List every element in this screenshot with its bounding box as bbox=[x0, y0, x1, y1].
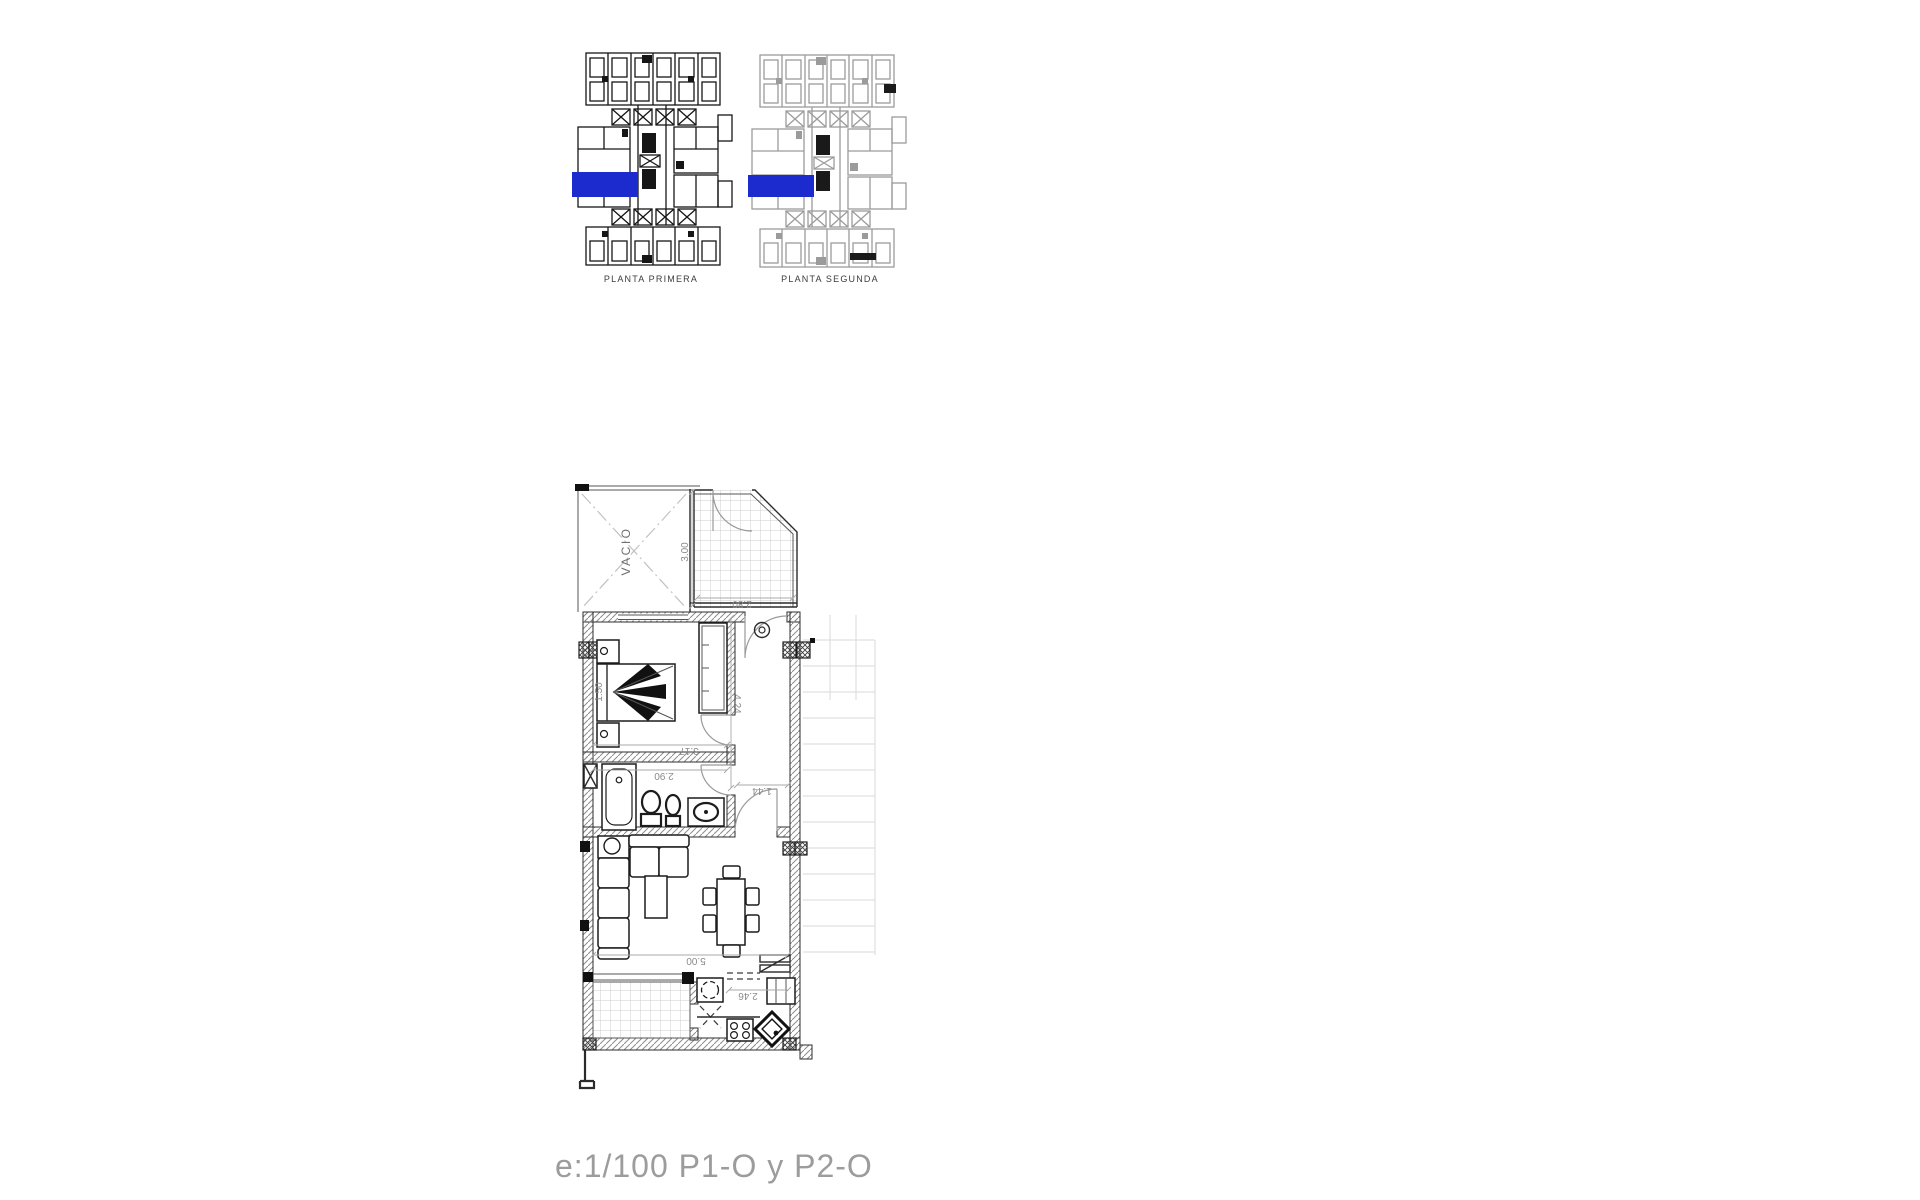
kitchen bbox=[697, 973, 795, 1046]
key-plan-planta-primera bbox=[572, 53, 732, 265]
key-plan-planta-segunda bbox=[748, 55, 906, 267]
wall-vent bbox=[580, 841, 590, 852]
side-table bbox=[598, 836, 629, 858]
dining-chair bbox=[746, 888, 759, 905]
living-room bbox=[580, 835, 790, 972]
key-plan-primera-drawing bbox=[578, 53, 732, 265]
bathroom-door-arc bbox=[701, 765, 731, 795]
wall-stub bbox=[575, 484, 589, 491]
dining-chair bbox=[746, 915, 759, 932]
sofa-seat bbox=[598, 858, 629, 888]
sofa-back bbox=[629, 835, 689, 847]
dim-bed-width: 1.50 bbox=[594, 682, 605, 702]
bedroom-door-arc bbox=[701, 715, 731, 745]
dim-hall-width: 1.44 bbox=[752, 785, 772, 796]
dim-terrace-width: 2.80 bbox=[732, 598, 752, 609]
dim-bathroom-width: 2.90 bbox=[654, 770, 674, 781]
dining-chair bbox=[703, 915, 716, 932]
bidet-bowl bbox=[666, 795, 680, 815]
key-plan-segunda-label: PLANTA SEGUNDA bbox=[781, 274, 879, 284]
highlight-unit-planta-segunda bbox=[748, 175, 814, 197]
dim-bedroom-width: 3.17 bbox=[679, 745, 699, 756]
ceiling-lamp-symbol-inner bbox=[759, 627, 765, 633]
toilet-bowl bbox=[642, 791, 660, 813]
sofa-seat bbox=[630, 847, 659, 877]
apartment-plan: VACIO bbox=[575, 484, 875, 1088]
sofa-arm bbox=[598, 948, 629, 959]
neighbour-faint-lines bbox=[803, 615, 875, 955]
lower-terrace bbox=[583, 972, 694, 1038]
dining-table bbox=[717, 879, 745, 945]
dim-living-width: 5.00 bbox=[686, 955, 706, 966]
dining-chair bbox=[703, 888, 716, 905]
column-tick bbox=[810, 638, 815, 643]
wall-vent bbox=[580, 920, 589, 931]
sofa-seat bbox=[598, 888, 629, 918]
dim-terrace-height: 3.00 bbox=[680, 542, 691, 562]
wall-accent bbox=[884, 84, 896, 93]
highlight-unit-planta-primera bbox=[572, 172, 638, 197]
window-jamb bbox=[682, 972, 694, 984]
toilet-tank bbox=[641, 814, 661, 826]
scale-caption: e:1/100 P1-O y P2-O bbox=[555, 1148, 873, 1184]
dim-hall-length: 4.24 bbox=[731, 694, 742, 714]
floor-plan-sheet: PLANTA PRIMERA PLANTA SEGUNDA VACIO bbox=[0, 0, 1920, 1200]
core-shaft-accent bbox=[816, 171, 830, 191]
sofa-seat bbox=[659, 847, 688, 877]
fridge bbox=[767, 978, 795, 1004]
void-diagonals bbox=[582, 494, 686, 608]
plan-canvas: PLANTA PRIMERA PLANTA SEGUNDA VACIO bbox=[0, 0, 1920, 1200]
window-jamb bbox=[583, 972, 593, 982]
void-label: VACIO bbox=[619, 527, 633, 576]
dining-chair bbox=[723, 866, 740, 878]
dim-kitchen-width: 2.46 bbox=[738, 990, 758, 1001]
key-plan-segunda-drawing bbox=[752, 55, 906, 267]
bedroom: 1.50 bbox=[594, 623, 731, 747]
entry-hall bbox=[735, 616, 787, 831]
wall-accent bbox=[850, 253, 876, 260]
sofa-seat bbox=[598, 918, 629, 948]
coffee-table bbox=[645, 876, 667, 918]
upper-terrace bbox=[690, 489, 797, 612]
bidet-base bbox=[666, 816, 680, 826]
stove bbox=[727, 1019, 753, 1041]
key-plan-primera-label: PLANTA PRIMERA bbox=[604, 274, 698, 284]
core-shaft-accent bbox=[816, 135, 830, 155]
